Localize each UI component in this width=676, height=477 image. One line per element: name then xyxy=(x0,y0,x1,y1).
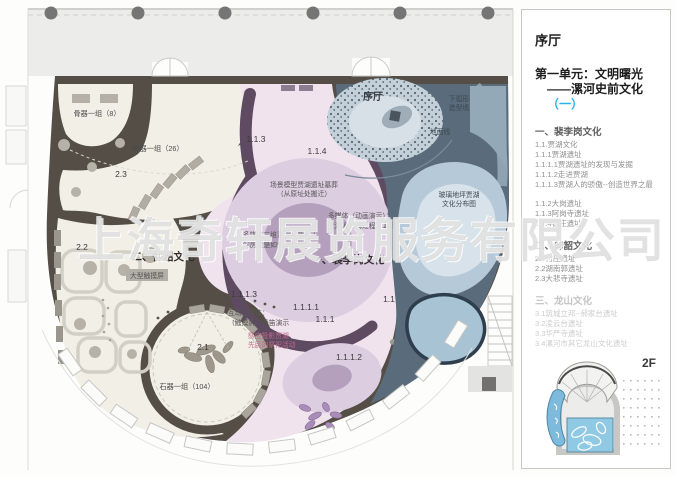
sidebar-item: 2.3大悲寺遗址 xyxy=(535,274,660,284)
floor-plan-svg: 骨器一组（8） 陶器一组（26） 2.3 2.2 二、仰韶文化 大型触摸屏 2.… xyxy=(0,0,515,477)
sidebar-item: 2.2湖南郭遗址 xyxy=(535,264,660,274)
label-bone-group: 骨器一组（8） xyxy=(73,109,120,118)
minimap-blue-room xyxy=(567,418,613,452)
label-code-1-1-1: 1.1.1 xyxy=(316,314,335,324)
label-code-1-1-3: 1.1.3 xyxy=(247,134,266,144)
label-media-3d-2: 的房屋是如何建造的？ xyxy=(243,240,311,249)
label-stone-group: 石器一组（104） xyxy=(159,382,214,391)
section-heading: 二、仰韶文化 xyxy=(535,238,660,252)
glass-teardrop xyxy=(407,295,485,363)
label-code-1-1-2: 1.1.2 xyxy=(376,220,395,230)
sidebar-item: 3.2凌云台遗址 xyxy=(535,319,660,329)
panel-title: 序厅 xyxy=(535,30,660,49)
sidebar-item: 1.1.3阿岗寺遗址 xyxy=(535,209,660,219)
section-spacer xyxy=(535,190,660,199)
label-sec-yangshao: 二、仰韶文化 xyxy=(132,250,195,263)
label-scene-model-1: 场景模型贾湖遗址墓葬 xyxy=(270,180,338,189)
page: 骨器一组（8） 陶器一组（26） 2.3 2.2 二、仰韶文化 大型触摸屏 2.… xyxy=(0,0,676,477)
sidebar-item: 1.1.1.2走进贾湖 xyxy=(535,170,660,180)
label-projection-2: 先民的祭祀活动 xyxy=(248,340,296,349)
sidebar-item: 2.1付庄遗址 xyxy=(535,254,660,264)
section-heading: 三、龙山文化 xyxy=(535,293,660,307)
label-code-2-3: 2.3 xyxy=(115,169,127,179)
unit-title-line1: 第一单元：文明曙光 xyxy=(535,67,660,82)
minimap-fan xyxy=(557,362,617,402)
label-touch-screen: 大型触摸屏 xyxy=(130,271,164,280)
stair-column xyxy=(482,377,496,391)
unit-title-highlight: （一） xyxy=(547,97,583,111)
label-xuting: 序厅 xyxy=(363,90,383,103)
sidebar-item: 1.1.1贾湖遗址 xyxy=(535,150,660,160)
label-interactive-1: 互动多媒体： xyxy=(228,308,269,317)
unit-title-line2-text: ——漯河史前文化 xyxy=(547,82,643,96)
label-media-anim-1: 多媒体（动画演示）： xyxy=(328,211,393,220)
sidebar-item: 3.1筑城立邦--郝家台遗址 xyxy=(535,309,660,319)
legend-panel: 序厅 第一单元：文明曙光 ——漯河史前文化（一） 一、裴李岗文化1.1.贾湖文化… xyxy=(521,9,671,469)
label-code-2-1: 2.1 xyxy=(197,342,209,352)
sidebar-item: 1.1.2大岗遗址 xyxy=(535,199,660,209)
sidebar-item: 1.1.1.3贾湖人的骄傲--创造世界之最 xyxy=(535,180,660,190)
label-media-anim-2: 贾湖人制陶过程 xyxy=(328,221,376,230)
label-projection-1: 感应投影贾湖 xyxy=(248,331,289,340)
sidebar-item: 1.1.贾湖文化 xyxy=(535,140,660,150)
label-scene-model-2: （从原址处搬迁） xyxy=(277,189,331,198)
sidebar-item: 1.1.1.1贾湖遗址的发现与发掘 xyxy=(535,160,660,170)
minimap-grid xyxy=(623,380,660,445)
label-code-1-1-1-1: 1.1.1.1 xyxy=(293,302,319,312)
label-pottery-group: 陶器一组（26） xyxy=(132,144,183,153)
unit-title-line2: ——漯河史前文化（一） xyxy=(547,82,660,112)
label-code-1-1-1-2: 1.1.1.2 xyxy=(336,352,362,362)
sidebar-item: 3.4漯河市其它龙山文化遗址 xyxy=(535,339,660,349)
label-media-3d-1: 多媒体三维演示：贾湖人 xyxy=(243,230,318,239)
label-code-1-1: 1.1 xyxy=(383,294,395,304)
sidebar-item: 1.1.4翟庄遗址 xyxy=(535,219,660,229)
label-sec-peiligang: 一、裴李岗文化 xyxy=(311,253,385,266)
label-ground-line: 地面线 xyxy=(430,127,451,136)
floor-label: 2F xyxy=(642,356,656,370)
label-code-1-1-4: 1.1.4 xyxy=(308,146,327,156)
xuting-stipple-circle xyxy=(327,78,443,162)
label-interactive-2: （触摸屏）骨笛演示 xyxy=(228,318,289,327)
sidebar-sections: 一、裴李岗文化1.1.贾湖文化1.1.1贾湖遗址1.1.1.1贾湖遗址的发现与发… xyxy=(535,124,660,349)
floor-plan: 骨器一组（8） 陶器一组（26） 2.3 2.2 二、仰韶文化 大型触摸屏 2.… xyxy=(0,0,515,477)
sidebar-item: 3.3华严寺遗址 xyxy=(535,329,660,339)
label-glass-floor-2: 文化分布图 xyxy=(442,199,476,208)
section-heading: 一、裴李岗文化 xyxy=(535,124,660,138)
corridor xyxy=(28,10,513,76)
label-arc-wall-2: 造型墙 xyxy=(449,103,470,112)
label-code-1-1-1-3: 1.1.1.3 xyxy=(231,289,257,299)
label-code-2-2: 2.2 xyxy=(76,242,88,252)
label-arc-wall-1: 下弧形 xyxy=(449,94,470,103)
label-glass-floor-1: 玻璃地坪贾湖 xyxy=(439,190,480,199)
